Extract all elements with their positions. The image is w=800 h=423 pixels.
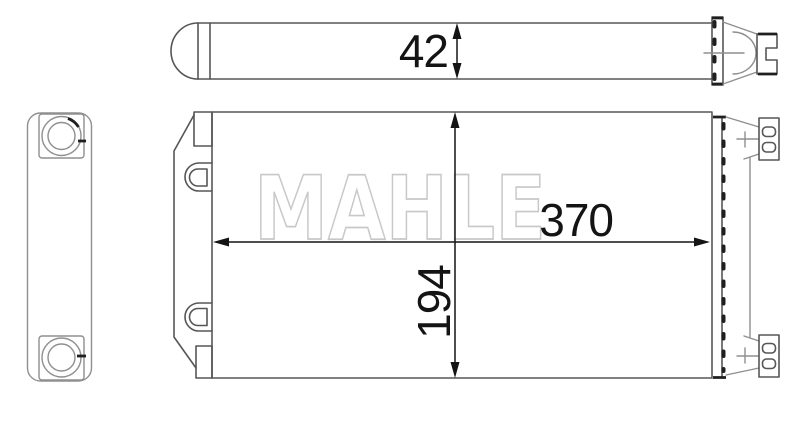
pipe-bracket-bottom-block <box>759 335 779 377</box>
pipe-bracket-top-slot-1 <box>763 127 776 137</box>
width-arrowhead-right <box>694 238 710 247</box>
heat-exchanger-drawing: MAHLE 42 <box>0 0 800 423</box>
width-dimension-label: 370 <box>539 194 613 246</box>
pipe-bracket-top-slot-2 <box>763 143 776 153</box>
outlet-port-flange <box>39 336 84 380</box>
pipe-bracket-top-block <box>759 118 779 160</box>
top-view-connector-block-edges <box>758 34 777 74</box>
outlet-port-bore <box>48 344 75 371</box>
inlet-port-bore <box>48 123 75 150</box>
pipe-bracket-bottom-slot-1 <box>763 344 776 354</box>
technical-drawing-canvas: MAHLE 42 <box>0 0 800 423</box>
top-view-end-cap <box>171 23 198 79</box>
depth-dimension-label: 42 <box>399 25 448 77</box>
pipe-bracket-bottom-slot-2 <box>763 359 776 369</box>
width-arrowhead-left <box>213 238 229 247</box>
pipe-bracket-bottom-links <box>726 336 759 375</box>
depth-arrowhead-down <box>453 63 462 79</box>
pipe-bracket-top-links <box>726 117 759 159</box>
mount-slot-bottom-inner <box>190 309 208 326</box>
pipe-bracket-bottom <box>726 335 779 377</box>
side-view-body-outline <box>28 113 92 381</box>
mount-tab-bottom <box>196 346 212 378</box>
top-view-cap-seam-lines <box>198 23 210 79</box>
height-arrowhead-down <box>451 362 460 378</box>
top-view <box>171 17 777 85</box>
depth-arrowhead-up <box>453 23 462 39</box>
mount-slot-top-inner <box>190 169 208 186</box>
mount-tab-top <box>194 112 212 146</box>
brand-watermark: MAHLE <box>254 157 546 260</box>
height-dimension-label: 194 <box>408 265 460 339</box>
dimension-depth: 42 <box>399 23 462 79</box>
inlet-port-flange <box>39 114 84 158</box>
height-arrowhead-up <box>451 112 460 128</box>
top-view-connector-block <box>757 34 777 74</box>
pipe-bracket-top <box>726 117 779 160</box>
side-view <box>28 113 92 381</box>
